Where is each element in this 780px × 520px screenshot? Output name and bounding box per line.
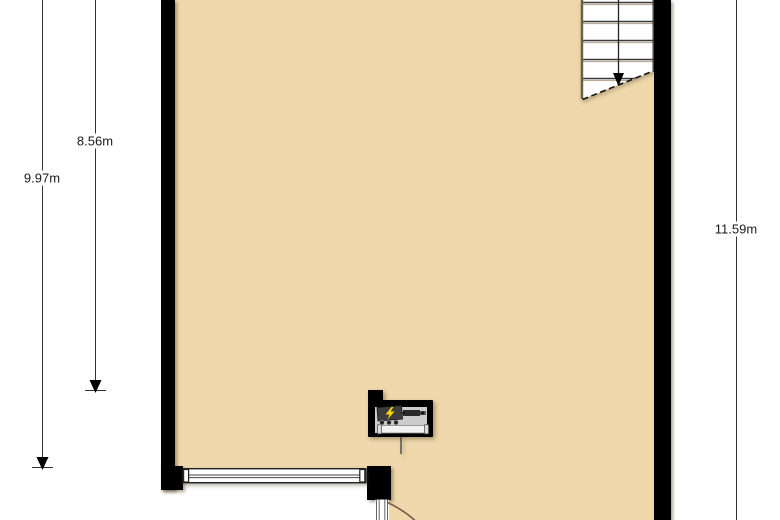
window-frame xyxy=(183,469,366,483)
door-jamb xyxy=(376,500,389,520)
staircase-going-down xyxy=(576,0,656,112)
dimension-label-left-outer: 9.97m xyxy=(22,171,62,186)
meter-fuses xyxy=(380,420,399,425)
window-end-cap xyxy=(360,470,365,483)
wall-left xyxy=(161,0,175,490)
window-in-bottom-wall xyxy=(178,464,372,490)
dimension-line-9-97 xyxy=(32,0,53,468)
stair-well xyxy=(581,0,654,100)
dimension-label-right: 11.59m xyxy=(713,222,759,237)
dimension-line-8-56 xyxy=(85,0,106,391)
window-end-cap xyxy=(184,470,189,483)
arrow-down-icon xyxy=(37,457,49,470)
door-swing-arc xyxy=(388,503,416,520)
electric-meter-box xyxy=(364,386,440,458)
meter-bottom-rail xyxy=(378,426,428,434)
wall-right xyxy=(654,0,671,520)
meter-rail-cap xyxy=(378,425,382,434)
door-swing xyxy=(370,495,460,520)
arrow-down-icon xyxy=(90,380,102,393)
meter-rail-cap xyxy=(425,425,429,434)
dimension-label-left-inner: 8.56m xyxy=(75,134,115,149)
floor-plan-canvas: 8.56m 9.97m 11.59m xyxy=(0,0,780,520)
